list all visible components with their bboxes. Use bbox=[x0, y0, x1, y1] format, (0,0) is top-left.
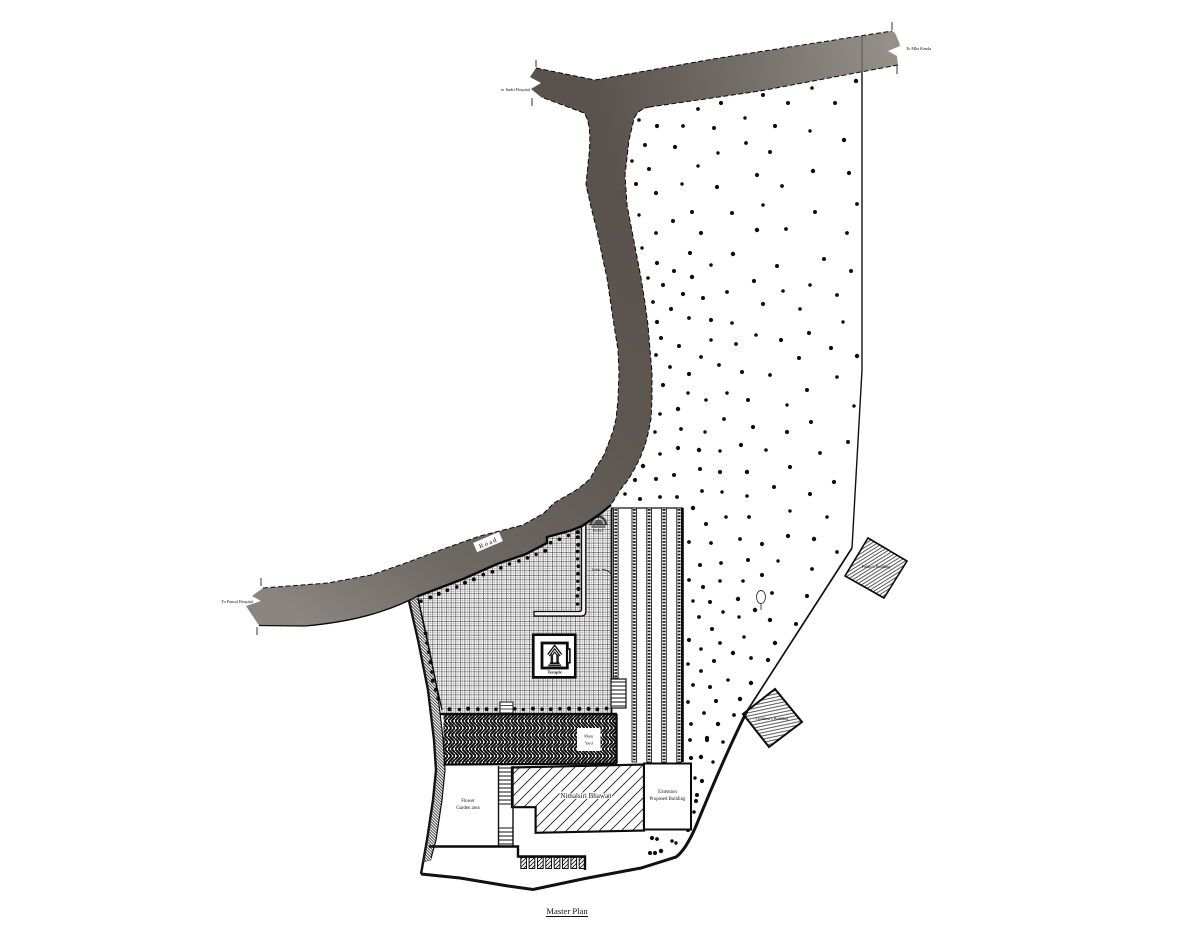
svg-text:Master Plan: Master Plan bbox=[546, 906, 588, 916]
svg-text:To Pansal Hospital: To Pansal Hospital bbox=[221, 599, 253, 604]
svg-text:Public's Building: Public's Building bbox=[862, 564, 892, 569]
svg-text:Extention: Extention bbox=[658, 790, 677, 795]
svg-text:Nimalsiri Bhawan: Nimalsiri Bhawan bbox=[560, 792, 612, 800]
svg-text:Children's Building: Children's Building bbox=[756, 716, 790, 721]
svg-text:to Jindri Hospital: to Jindri Hospital bbox=[501, 87, 531, 92]
svg-text:To Mha Kanda: To Mha Kanda bbox=[906, 46, 931, 51]
svg-text:Drain: Drain bbox=[592, 568, 600, 572]
svg-text:Temple: Temple bbox=[547, 670, 561, 675]
svg-text:Entrance: Entrance bbox=[593, 529, 604, 533]
svg-text:Proposed Building: Proposed Building bbox=[650, 797, 686, 802]
svg-text:Garden area: Garden area bbox=[456, 806, 480, 811]
svg-text:Flower: Flower bbox=[461, 799, 475, 804]
svg-text:Yard: Yard bbox=[585, 741, 594, 746]
svg-text:Maru: Maru bbox=[584, 734, 594, 739]
